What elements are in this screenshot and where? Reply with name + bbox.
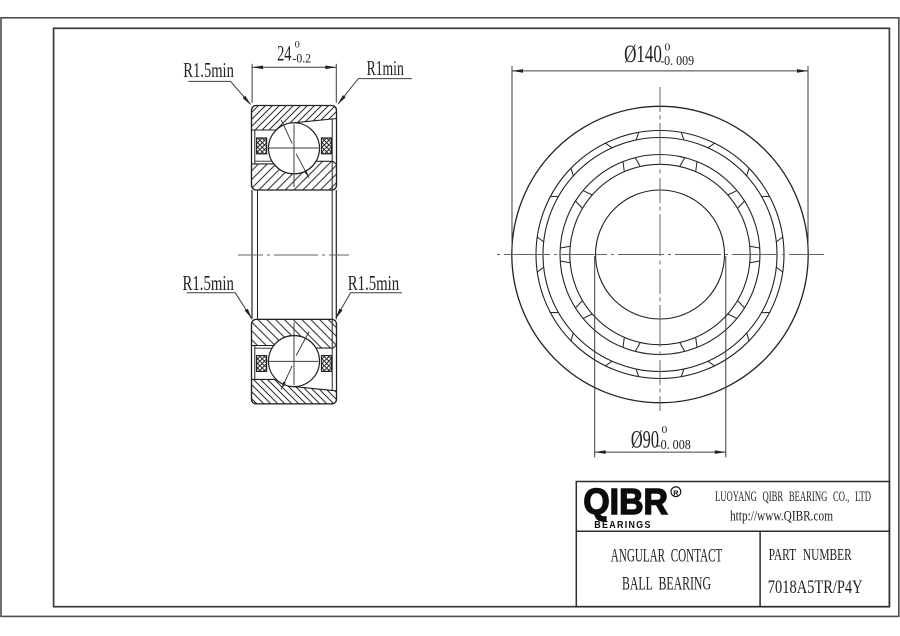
svg-text:24: 24 xyxy=(277,42,292,66)
svg-text:Ø90: Ø90 xyxy=(631,426,659,453)
svg-text:LUOYANG QIBR BEARING CO., LTD: LUOYANG QIBR BEARING CO., LTD xyxy=(715,489,871,505)
svg-text:http://www.QIBR.com: http://www.QIBR.com xyxy=(730,509,833,525)
svg-text:0: 0 xyxy=(662,425,668,436)
svg-text:ANGULAR CONTACT: ANGULAR CONTACT xyxy=(611,546,723,567)
svg-text:0: 0 xyxy=(295,39,300,50)
svg-text:-0. 009: -0. 009 xyxy=(660,53,694,68)
svg-text:BEARINGS: BEARINGS xyxy=(594,520,651,531)
svg-text:R1min: R1min xyxy=(367,56,404,80)
svg-text:PART NUMBER: PART NUMBER xyxy=(769,545,852,564)
svg-text:R1.5min: R1.5min xyxy=(348,271,400,295)
svg-text:R: R xyxy=(673,488,679,497)
svg-text:R1.5min: R1.5min xyxy=(183,271,235,295)
svg-text:-0. 008: -0. 008 xyxy=(657,437,691,452)
svg-text:Ø140: Ø140 xyxy=(624,41,662,68)
svg-text:QIBR: QIBR xyxy=(583,482,668,522)
svg-text:R1.5min: R1.5min xyxy=(183,58,234,82)
svg-text:BALL BEARING: BALL BEARING xyxy=(622,573,711,594)
svg-text:7018A5TR/P4Y: 7018A5TR/P4Y xyxy=(768,577,863,598)
svg-text:-0.2: -0.2 xyxy=(292,52,311,66)
